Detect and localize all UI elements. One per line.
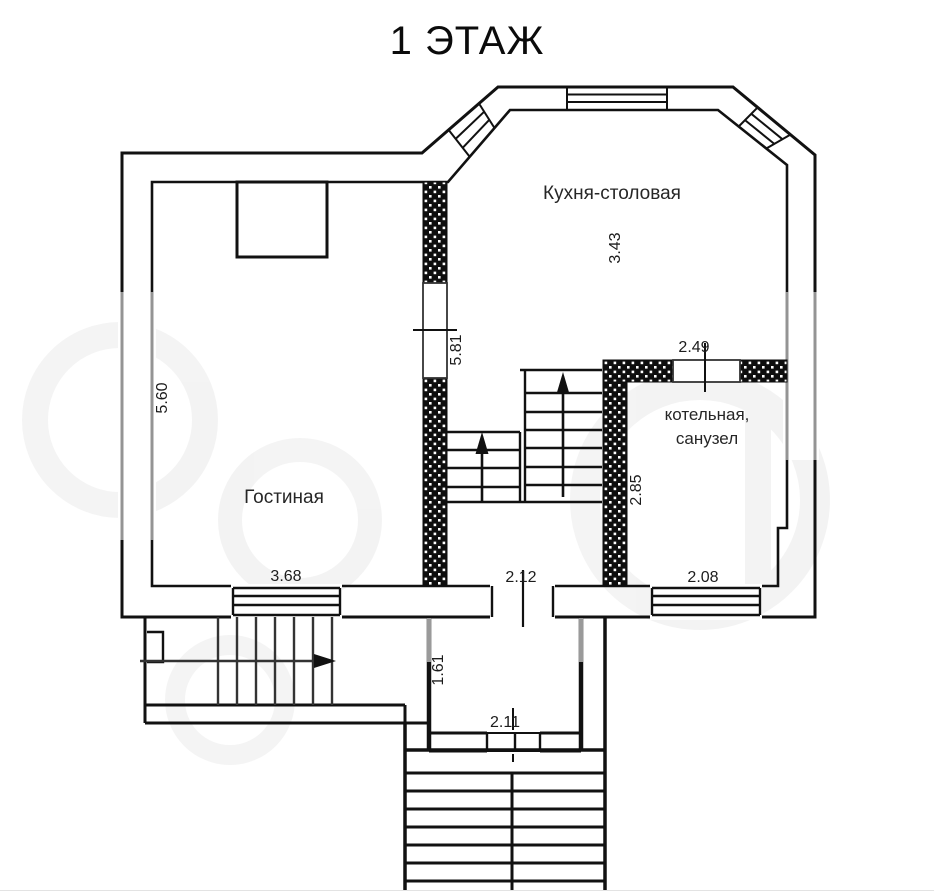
room-label-boiler-line1: котельная,: [665, 405, 750, 424]
bay-window-top: [567, 87, 667, 110]
room-label-kitchen-dining: Кухня-столовая: [543, 183, 681, 204]
dim-boiler-height: 2.85: [628, 474, 645, 505]
window-right-wall: [783, 292, 819, 460]
dim-stair-hall-width: 2.12: [505, 569, 536, 586]
dim-central-partition: 5.81: [448, 334, 465, 365]
dim-boiler-entry-wall: 2.49: [678, 339, 709, 356]
window-boiler-room: [650, 584, 762, 620]
boiler-door-opening: [673, 360, 740, 382]
window-left-wall: [118, 292, 156, 540]
dim-living-height: 5.60: [154, 382, 171, 413]
boiler-top-wall-left: [603, 360, 673, 382]
dim-boiler-width: 2.08: [687, 569, 718, 586]
floor-plan-page: 1 ЭТАЖ: [0, 0, 934, 891]
dim-porch-depth: 1.61: [430, 654, 447, 685]
page-title: 1 ЭТАЖ: [390, 19, 545, 63]
central-wall-lower: [423, 378, 447, 586]
room-label-boiler-line2: санузел: [676, 429, 738, 448]
room-label-living-room: Гостиная: [244, 487, 324, 508]
dim-kitchen-depth: 3.43: [607, 232, 624, 263]
window-living-room: [231, 584, 342, 620]
central-wall-upper: [423, 182, 447, 283]
entry-porch: [429, 618, 581, 754]
stair-boiler-wall: [603, 360, 627, 586]
dim-living-width: 3.68: [270, 568, 301, 585]
floor-plan-drawing: 1 ЭТАЖ: [0, 0, 934, 890]
fireplace-block: [237, 182, 327, 257]
boiler-top-wall-right: [740, 360, 787, 382]
stair-direction-arrows: [476, 372, 570, 502]
dim-porch-width: 2.11: [490, 714, 520, 731]
